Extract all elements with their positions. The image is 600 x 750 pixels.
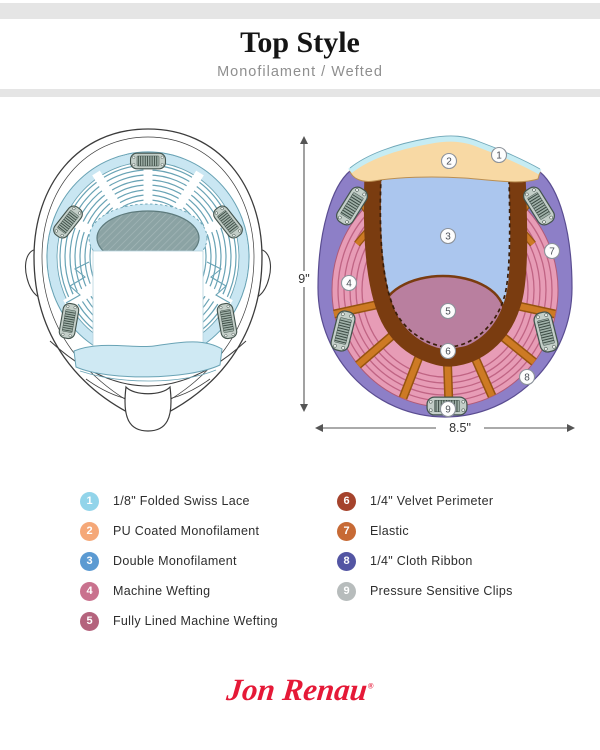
legend-number-badge: 3	[80, 552, 99, 571]
header-divider-band	[0, 89, 600, 97]
legend-label: Machine Wefting	[113, 584, 210, 598]
legend-label: 1/4" Cloth Ribbon	[370, 554, 473, 568]
callout-1: 1	[492, 148, 507, 163]
legend-label: Double Monofilament	[113, 554, 237, 568]
svg-text:1: 1	[496, 151, 502, 162]
svg-text:9": 9"	[298, 272, 309, 286]
legend-label: 1/4" Velvet Perimeter	[370, 494, 493, 508]
legend-item-cloth-ribbon: 8 1/4" Cloth Ribbon	[337, 546, 513, 576]
dimension-height: 9"	[292, 136, 316, 412]
cap-open-interior	[93, 251, 203, 347]
svg-text:2: 2	[446, 157, 452, 168]
svg-text:9: 9	[445, 405, 451, 416]
svg-text:5: 5	[445, 307, 451, 318]
brand-logo: Jon Renau®	[0, 672, 600, 708]
page-subtitle: Monofilament / Wefted	[0, 64, 600, 80]
legend-left-column: 1 1/8" Folded Swiss Lace 2 PU Coated Mon…	[80, 486, 278, 636]
legend-number-badge: 4	[80, 582, 99, 601]
callout-9: 9	[441, 402, 456, 417]
callout-8: 8	[520, 370, 535, 385]
callout-4: 4	[342, 276, 357, 291]
nape-lace-band	[74, 342, 222, 377]
svg-text:3: 3	[445, 232, 451, 243]
svg-text:6: 6	[445, 347, 451, 358]
top-divider-band	[0, 3, 600, 19]
legend-label: 1/8" Folded Swiss Lace	[113, 494, 250, 508]
page: Top Style Monofilament / Wefted	[0, 0, 600, 750]
legend-number-badge: 6	[337, 492, 356, 511]
legend-number-badge: 9	[337, 582, 356, 601]
cap-construction-diagram: 1 2 3 4 5 6 7 8 9	[318, 136, 572, 417]
legend-item-lined-wefting: 5 Fully Lined Machine Wefting	[80, 606, 278, 636]
svg-text:8: 8	[524, 373, 530, 384]
legend-item-velvet-perimeter: 6 1/4" Velvet Perimeter	[337, 486, 513, 516]
legend-item-pressure-clips: 9 Pressure Sensitive Clips	[337, 576, 513, 606]
callout-6: 6	[441, 344, 456, 359]
legend-item-machine-wefting: 4 Machine Wefting	[80, 576, 278, 606]
callout-5: 5	[441, 304, 456, 319]
registered-mark: ®	[367, 682, 374, 691]
legend-label: Elastic	[370, 524, 409, 538]
cap-diagrams: 1 2 3 4 5 6 7 8 9 9" 8.5"	[0, 125, 600, 445]
legend-item-double-monofilament: 3 Double Monofilament	[80, 546, 278, 576]
wig-clip-icon	[131, 153, 166, 169]
legend-number-badge: 8	[337, 552, 356, 571]
legend-right-column: 6 1/4" Velvet Perimeter 7 Elastic 8 1/4"…	[337, 486, 513, 606]
svg-text:4: 4	[346, 279, 352, 290]
head-top-view-diagram	[26, 129, 271, 431]
nose	[125, 387, 171, 431]
callout-7: 7	[545, 244, 560, 259]
legend-label: Pressure Sensitive Clips	[370, 584, 513, 598]
svg-text:7: 7	[549, 247, 555, 258]
legend-number-badge: 1	[80, 492, 99, 511]
legend-label: PU Coated Monofilament	[113, 524, 259, 538]
legend-item-pu-monofilament: 2 PU Coated Monofilament	[80, 516, 278, 546]
callout-2: 2	[442, 154, 457, 169]
legend-number-badge: 5	[80, 612, 99, 631]
legend-item-elastic: 7 Elastic	[337, 516, 513, 546]
legend-label: Fully Lined Machine Wefting	[113, 614, 278, 628]
dimension-width: 8.5"	[315, 419, 575, 436]
svg-text:8.5": 8.5"	[449, 421, 471, 435]
callout-3: 3	[441, 229, 456, 244]
legend-number-badge: 7	[337, 522, 356, 541]
legend-number-badge: 2	[80, 522, 99, 541]
page-title: Top Style	[0, 26, 600, 60]
legend-item-swiss-lace: 1 1/8" Folded Swiss Lace	[80, 486, 278, 516]
brand-logo-text: Jon Renau	[225, 672, 369, 707]
